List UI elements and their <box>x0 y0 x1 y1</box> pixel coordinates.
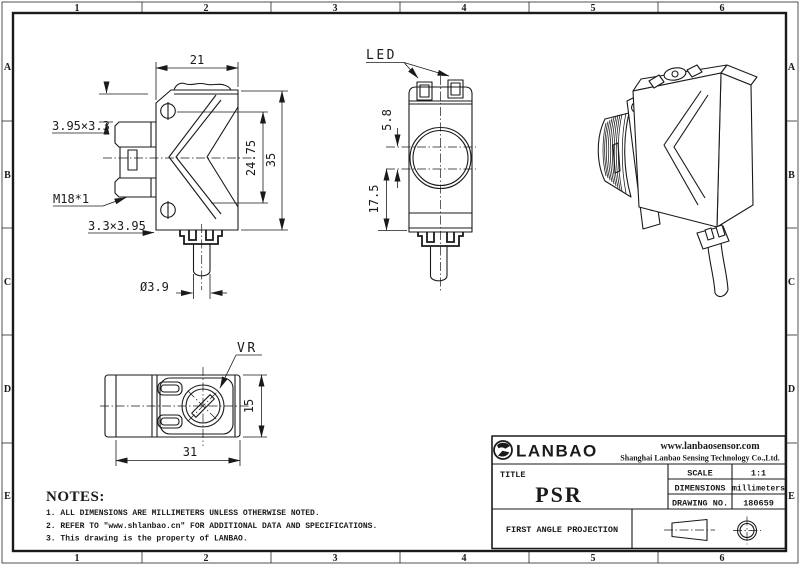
iso-main-body <box>633 65 757 227</box>
side-dimensions: LED 5.8 17.5 <box>366 48 449 231</box>
grid-row-label: E <box>4 491 11 502</box>
drawing-no-label: DRAWING NO. <box>672 499 728 509</box>
dim-width-21: 21 <box>190 53 204 67</box>
grid-row-label: D <box>788 384 795 395</box>
note-line-1: 1. ALL DIMENSIONS ARE MILLIMETERS UNLESS… <box>46 509 320 518</box>
scale-value: 1:1 <box>751 469 766 479</box>
iso-connector-cable <box>697 225 729 296</box>
bottom-view: VR 15 31 <box>100 341 267 466</box>
dim-width-31: 31 <box>183 445 197 459</box>
grid-col-label: 2 <box>204 3 209 14</box>
grid-row-label: A <box>788 62 796 73</box>
grid-col-label: 6 <box>720 3 725 14</box>
projection-symbol <box>664 517 761 545</box>
projection-label: FIRST ANGLE PROJECTION <box>506 525 618 535</box>
clip-bottom <box>158 415 182 428</box>
notes-block: NOTES: 1. ALL DIMENSIONS ARE MILLIMETERS… <box>46 489 377 544</box>
front-connector <box>180 230 222 244</box>
title-label: TITLE <box>500 470 526 480</box>
company-website: www.lanbaosensor.com <box>660 441 760 452</box>
scale-label: SCALE <box>687 469 713 479</box>
drawing-sheet: 1 2 3 4 5 6 1 2 3 4 5 6 A B C D E A B C … <box>0 0 800 565</box>
clip-top <box>158 382 182 395</box>
note-line-2: 2. REFER TO "www.shlanbao.cn" FOR ADDITI… <box>46 522 377 531</box>
dim-slot-top: 3.95×3.3 <box>52 119 110 133</box>
dimensions-value: millimeters <box>732 485 785 494</box>
iso-side-face <box>717 73 753 227</box>
label-vr: VR <box>237 341 258 356</box>
dim-led-offset-58: 5.8 <box>380 109 394 131</box>
front-dimensions: 21 24.75 35 3.95×3.3 M18*1 3.3×3.95 Ø3.9 <box>52 53 288 299</box>
drawing-canvas: 1 2 3 4 5 6 1 2 3 4 5 6 A B C D E A B C … <box>0 0 800 565</box>
grid-row-label: D <box>4 384 11 395</box>
grid-row-label: E <box>788 491 795 502</box>
iso-threaded-cylinder <box>598 113 631 197</box>
dim-height-35: 35 <box>264 153 278 167</box>
side-view: LED 5.8 17.5 <box>366 48 476 292</box>
grid-col-label: 3 <box>333 553 338 564</box>
grid-col-label: 1 <box>75 553 80 564</box>
grid-row-label: C <box>788 277 795 288</box>
grid-row-label: C <box>4 277 11 288</box>
drawing-no-value: 180659 <box>743 499 774 509</box>
dim-cable-dia: Ø3.9 <box>140 280 169 294</box>
grid-row-label: B <box>4 170 11 181</box>
front-m18-mount <box>115 122 156 197</box>
grid-row-label: B <box>788 170 795 181</box>
brand-name: LANBAO <box>516 442 598 461</box>
brand-logo: LANBAO www.lanbaosensor.com Shanghai Lan… <box>494 441 780 463</box>
note-line-3: 3. This drawing is the property of LANBA… <box>46 535 248 544</box>
bottom-body-outline <box>105 375 240 437</box>
front-body-outline <box>156 83 238 230</box>
dim-thread-m18: M18*1 <box>53 192 89 206</box>
label-led: LED <box>366 48 397 63</box>
dim-inner-height-2475: 24.75 <box>244 140 258 176</box>
title-block: LANBAO www.lanbaosensor.com Shanghai Lan… <box>492 436 786 549</box>
grid-col-label: 1 <box>75 3 80 14</box>
isometric-view <box>598 65 757 296</box>
grid-col-label: 4 <box>462 553 467 564</box>
company-name: Shanghai Lanbao Sensing Technology Co.,L… <box>620 454 779 463</box>
dimensions-label: DIMENSIONS <box>674 484 725 494</box>
dim-slot-bottom: 3.3×3.95 <box>88 219 146 233</box>
grid-col-label: 4 <box>462 3 467 14</box>
dim-height-15: 15 <box>242 399 256 413</box>
drawing-title: PSR <box>535 482 583 507</box>
grid-row-label: A <box>4 62 12 73</box>
grid-col-label: 5 <box>591 553 596 564</box>
front-view: 21 24.75 35 3.95×3.3 M18*1 3.3×3.95 Ø3.9 <box>52 53 288 299</box>
bottom-dimensions: VR 15 31 <box>116 341 267 466</box>
grid-col-label: 3 <box>333 3 338 14</box>
dim-lens-height-175: 17.5 <box>367 185 381 214</box>
side-cable <box>431 246 448 281</box>
grid-col-label: 6 <box>720 553 725 564</box>
notes-heading: NOTES: <box>46 489 105 505</box>
grid-col-label: 2 <box>204 553 209 564</box>
grid-col-label: 5 <box>591 3 596 14</box>
